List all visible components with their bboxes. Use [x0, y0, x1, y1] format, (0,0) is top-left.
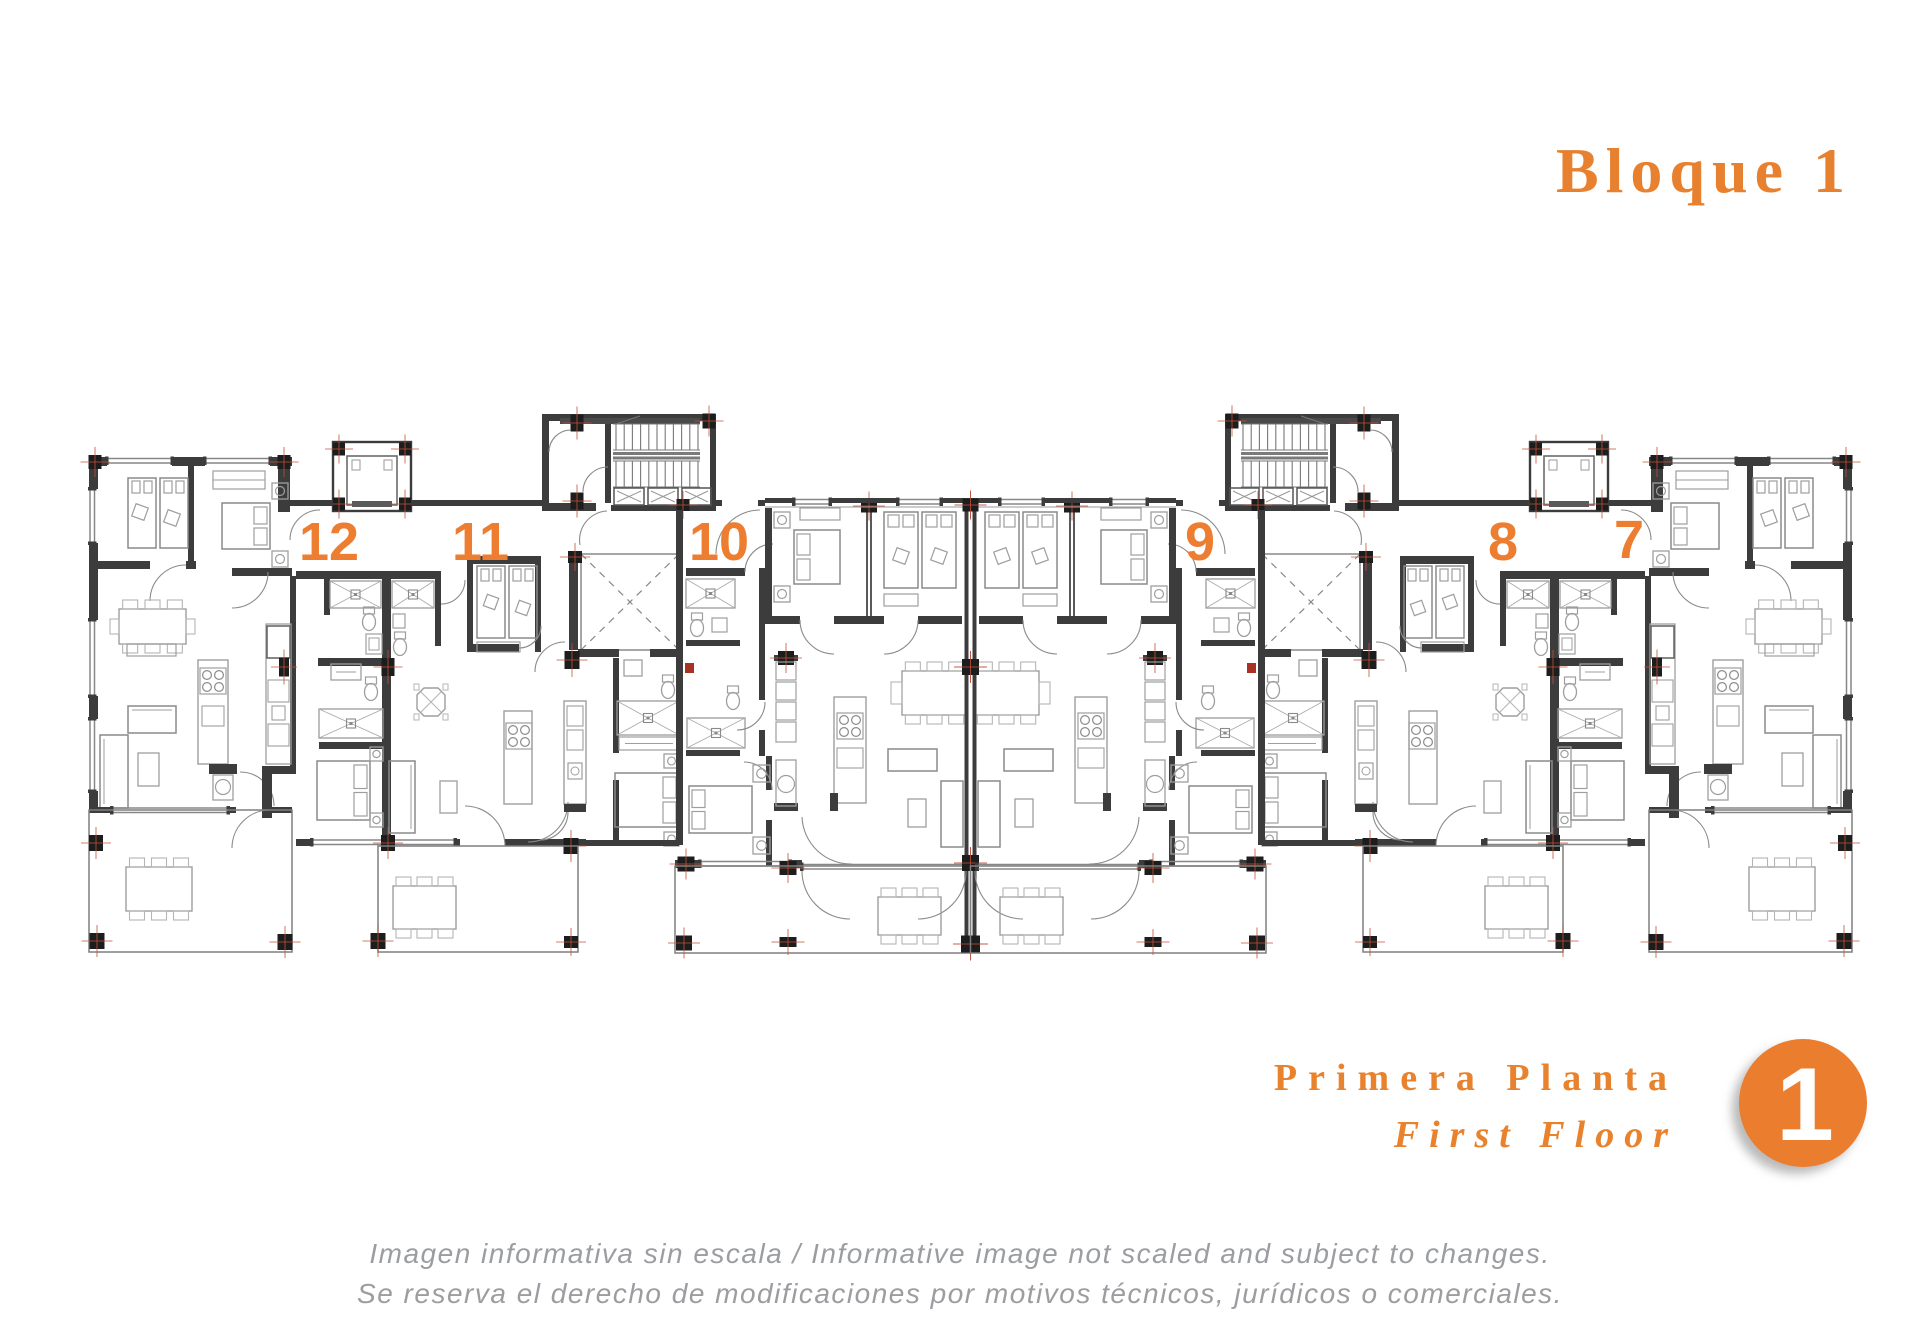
svg-text:12: 12	[299, 512, 359, 572]
svg-text:8: 8	[1488, 512, 1518, 572]
svg-text:Primera Planta: Primera Planta	[1274, 1057, 1678, 1099]
svg-text:Imagen informativa sin escala: Imagen informativa sin escala / Informat…	[369, 1238, 1550, 1269]
svg-text:9: 9	[1185, 512, 1215, 572]
svg-text:Se reserva el derecho de modif: Se reserva el derecho de modificaciones …	[357, 1278, 1563, 1309]
svg-text:First Floor: First Floor	[1393, 1114, 1678, 1156]
svg-text:Bloque 1: Bloque 1	[1556, 135, 1852, 206]
svg-text:11: 11	[452, 512, 509, 572]
svg-text:7: 7	[1614, 510, 1644, 570]
svg-text:10: 10	[689, 512, 749, 572]
svg-text:1: 1	[1776, 1047, 1834, 1163]
